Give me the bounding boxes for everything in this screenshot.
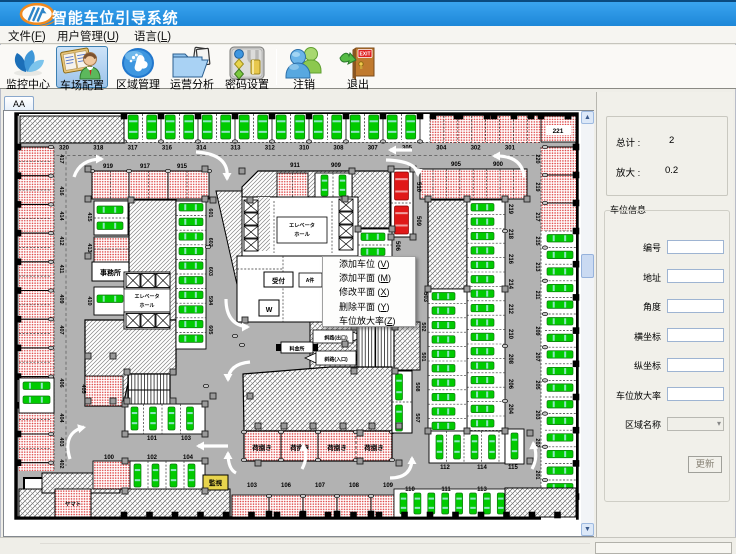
svg-text:919: 919 xyxy=(103,164,114,170)
svg-text:310: 310 xyxy=(299,146,310,152)
svg-text:101: 101 xyxy=(147,436,158,442)
svg-text:415: 415 xyxy=(86,212,92,221)
svg-text:206: 206 xyxy=(507,379,513,390)
svg-text:409: 409 xyxy=(58,294,64,303)
svg-text:受付: 受付 xyxy=(272,276,286,285)
svg-text:404: 404 xyxy=(58,413,64,423)
svg-text:エレベータ: エレベータ xyxy=(134,293,159,300)
svg-text:403: 403 xyxy=(58,437,64,446)
svg-text:413: 413 xyxy=(86,243,92,252)
svg-text:216: 216 xyxy=(507,254,513,265)
svg-text:103: 103 xyxy=(247,483,258,489)
svg-text:203: 203 xyxy=(534,410,540,419)
svg-text:221: 221 xyxy=(553,128,564,135)
svg-text:406: 406 xyxy=(58,378,64,387)
svg-text:ホール: ホール xyxy=(139,302,154,309)
svg-text:405: 405 xyxy=(80,384,86,393)
svg-text:301: 301 xyxy=(505,146,516,152)
svg-text:911: 911 xyxy=(290,163,300,169)
svg-text:302: 302 xyxy=(471,146,482,152)
svg-text:905: 905 xyxy=(451,162,462,168)
svg-text:320: 320 xyxy=(59,146,70,152)
svg-text:601: 601 xyxy=(207,208,213,217)
svg-text:312: 312 xyxy=(265,146,276,152)
svg-text:113: 113 xyxy=(477,487,487,493)
svg-text:417: 417 xyxy=(58,154,64,163)
svg-text:料金所: 料金所 xyxy=(289,346,304,353)
svg-text:603: 603 xyxy=(207,267,213,276)
svg-text:402: 402 xyxy=(58,459,64,468)
svg-text:212: 212 xyxy=(507,304,513,315)
svg-text:219: 219 xyxy=(534,182,540,191)
svg-text:監視: 監視 xyxy=(209,478,223,487)
svg-text:103: 103 xyxy=(181,436,192,442)
svg-text:411: 411 xyxy=(58,265,64,274)
svg-text:104: 104 xyxy=(183,455,194,461)
svg-text:900: 900 xyxy=(493,162,504,168)
svg-text:410: 410 xyxy=(86,296,92,305)
svg-text:502: 502 xyxy=(420,322,426,331)
svg-text:507: 507 xyxy=(414,413,420,422)
svg-text:ヤマト: ヤマト xyxy=(65,501,82,508)
svg-text:412: 412 xyxy=(58,236,64,245)
svg-text:110: 110 xyxy=(405,487,415,493)
svg-text:荷捌き: 荷捌き xyxy=(363,443,384,452)
svg-text:313: 313 xyxy=(230,146,241,152)
svg-text:316: 316 xyxy=(162,146,173,152)
svg-text:事務所: 事務所 xyxy=(100,268,121,277)
svg-text:503: 503 xyxy=(422,292,428,303)
svg-text:107: 107 xyxy=(315,483,326,489)
svg-text:211: 211 xyxy=(534,291,540,300)
svg-text:斜路(出口): 斜路(出口) xyxy=(323,335,348,342)
svg-text:217: 217 xyxy=(534,212,540,221)
svg-text:510: 510 xyxy=(415,182,421,193)
svg-text:A件: A件 xyxy=(306,277,315,284)
svg-text:荷捌き: 荷捌き xyxy=(326,443,347,452)
svg-text:108: 108 xyxy=(349,483,360,489)
svg-text:220: 220 xyxy=(534,154,540,163)
svg-text:917: 917 xyxy=(140,164,151,170)
svg-text:909: 909 xyxy=(331,163,342,169)
svg-text:501: 501 xyxy=(420,352,426,361)
svg-text:215: 215 xyxy=(534,236,540,245)
svg-text:210: 210 xyxy=(507,329,513,340)
svg-text:102: 102 xyxy=(147,455,158,461)
svg-text:416: 416 xyxy=(58,186,64,195)
svg-text:208: 208 xyxy=(507,354,513,365)
svg-text:106: 106 xyxy=(281,483,292,489)
svg-text:207: 207 xyxy=(534,352,540,361)
svg-text:100: 100 xyxy=(104,455,115,461)
svg-text:W: W xyxy=(266,307,273,314)
svg-text:605: 605 xyxy=(207,325,213,334)
svg-text:219: 219 xyxy=(507,204,513,215)
svg-text:308: 308 xyxy=(333,146,344,152)
svg-text:ホール: ホール xyxy=(294,231,310,238)
svg-text:111: 111 xyxy=(441,487,451,493)
svg-text:594: 594 xyxy=(207,296,213,306)
svg-text:414: 414 xyxy=(58,211,64,221)
svg-text:エレベータ: エレベータ xyxy=(289,221,315,229)
svg-text:506: 506 xyxy=(394,241,400,252)
svg-text:307: 307 xyxy=(368,146,379,152)
svg-text:317: 317 xyxy=(128,146,139,152)
svg-text:112: 112 xyxy=(440,465,450,471)
svg-text:荷捌き: 荷捌き xyxy=(251,443,272,452)
svg-text:201: 201 xyxy=(534,470,540,479)
svg-text:213: 213 xyxy=(534,262,540,271)
svg-text:205: 205 xyxy=(534,380,540,389)
svg-text:115: 115 xyxy=(508,465,518,471)
svg-text:509: 509 xyxy=(415,216,421,227)
svg-text:EXIT: EXIT xyxy=(359,52,370,58)
svg-text:318: 318 xyxy=(93,146,104,152)
svg-text:斜路(入口): 斜路(入口) xyxy=(323,356,348,363)
svg-text:209: 209 xyxy=(534,326,540,335)
svg-text:114: 114 xyxy=(477,465,487,471)
svg-text:109: 109 xyxy=(383,483,394,489)
svg-text:407: 407 xyxy=(58,325,64,334)
svg-text:304: 304 xyxy=(436,146,447,152)
svg-text:204: 204 xyxy=(507,404,513,415)
svg-text:508: 508 xyxy=(414,382,420,391)
svg-text:915: 915 xyxy=(177,164,188,170)
